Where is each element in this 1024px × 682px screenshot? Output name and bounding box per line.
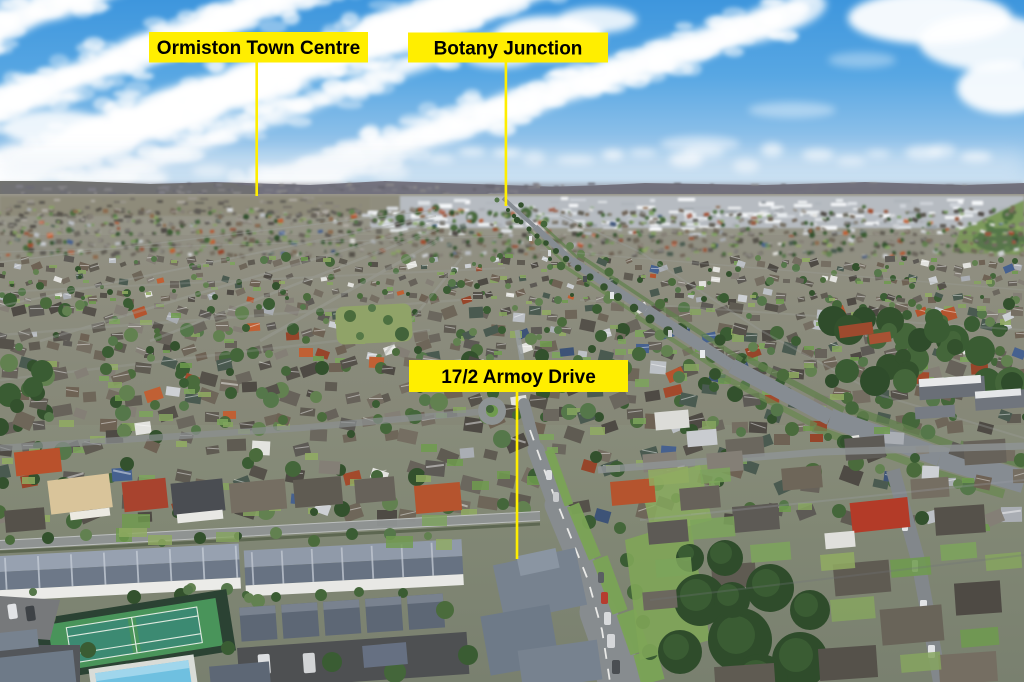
svg-text:17/2 Armoy Drive: 17/2 Armoy Drive <box>441 367 596 388</box>
svg-text:Ormiston Town Centre: Ormiston Town Centre <box>157 38 360 59</box>
svg-text:Botany Junction: Botany Junction <box>434 38 583 59</box>
